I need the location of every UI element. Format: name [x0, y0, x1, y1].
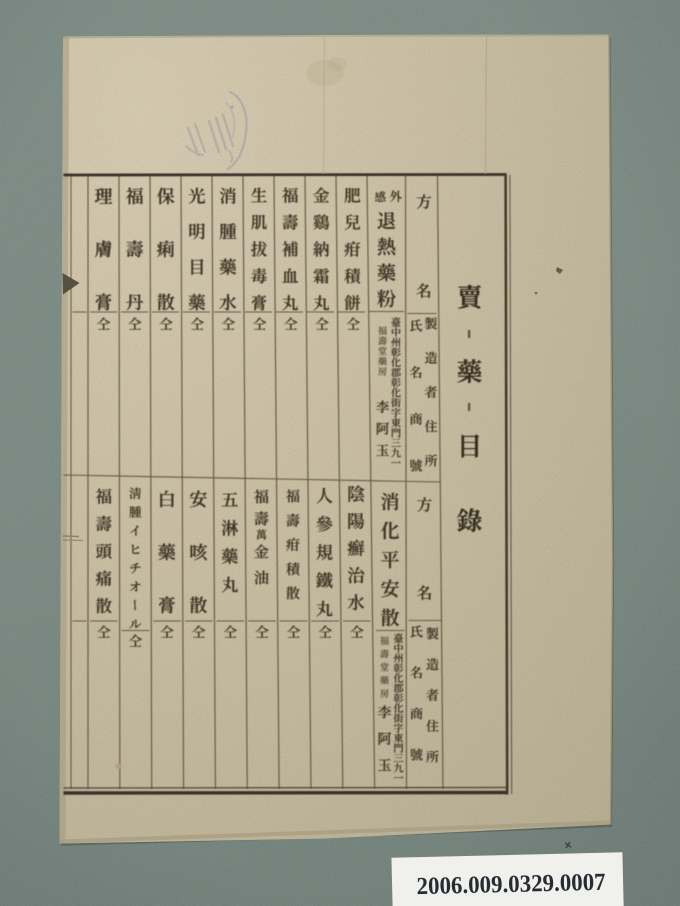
svg-text:2006.009.0329.0007: 2006.009.0329.0007 — [416, 869, 606, 900]
